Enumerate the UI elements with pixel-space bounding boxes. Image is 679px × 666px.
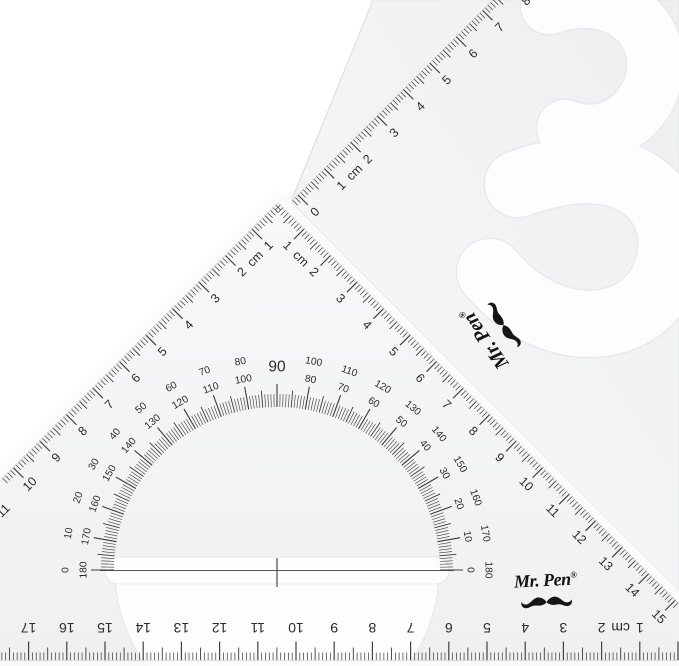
bottom-scale-label: cm — [611, 620, 630, 636]
bottom-scale-label: 9 — [330, 620, 338, 636]
bottom-scale-label: 16 — [59, 620, 75, 636]
protractor-90-label: 90 — [268, 359, 286, 376]
bottom-scale-label: 13 — [173, 620, 189, 636]
protractor-inner-label: 10 — [461, 530, 474, 543]
bottom-scale-label: 12 — [212, 620, 228, 636]
bottom-scale-label: 10 — [288, 620, 304, 636]
bottom-scale-label: 7 — [406, 620, 414, 636]
bottom-scale-label: 14 — [135, 620, 151, 636]
bottom-scale-label: 8 — [368, 620, 376, 636]
bottom-scale-label: 17 — [21, 620, 37, 636]
bottom-scale-label: 3 — [559, 620, 567, 636]
bottom-scale-label: 1 — [636, 620, 644, 636]
ruler-scene: 01cm2345678 1800170101602015030140401305… — [0, 0, 679, 666]
protractor-outer-label: 10 — [63, 527, 76, 540]
bottom-bevel-strip — [0, 661, 679, 666]
protractor-inner-label: 180 — [79, 561, 90, 578]
bottom-scale-label: 4 — [521, 620, 529, 636]
bottom-scale-label: 11 — [250, 620, 265, 636]
bottom-scale-label: 2 — [597, 620, 605, 636]
bottom-scale-label: 6 — [445, 620, 453, 636]
product-photo-canvas: 01cm2345678 1800170101602015030140401305… — [0, 0, 679, 666]
bottom-scale-label: 15 — [97, 620, 113, 636]
protractor-outer-label: 80 — [234, 356, 247, 369]
protractor-outer-label: 0 — [61, 567, 72, 573]
protractor-outer-label: 180 — [483, 562, 494, 579]
bottom-scale-label: 5 — [483, 620, 491, 636]
protractor-inner-label: 0 — [465, 567, 476, 573]
protractor-inner-label: 80 — [304, 373, 317, 386]
